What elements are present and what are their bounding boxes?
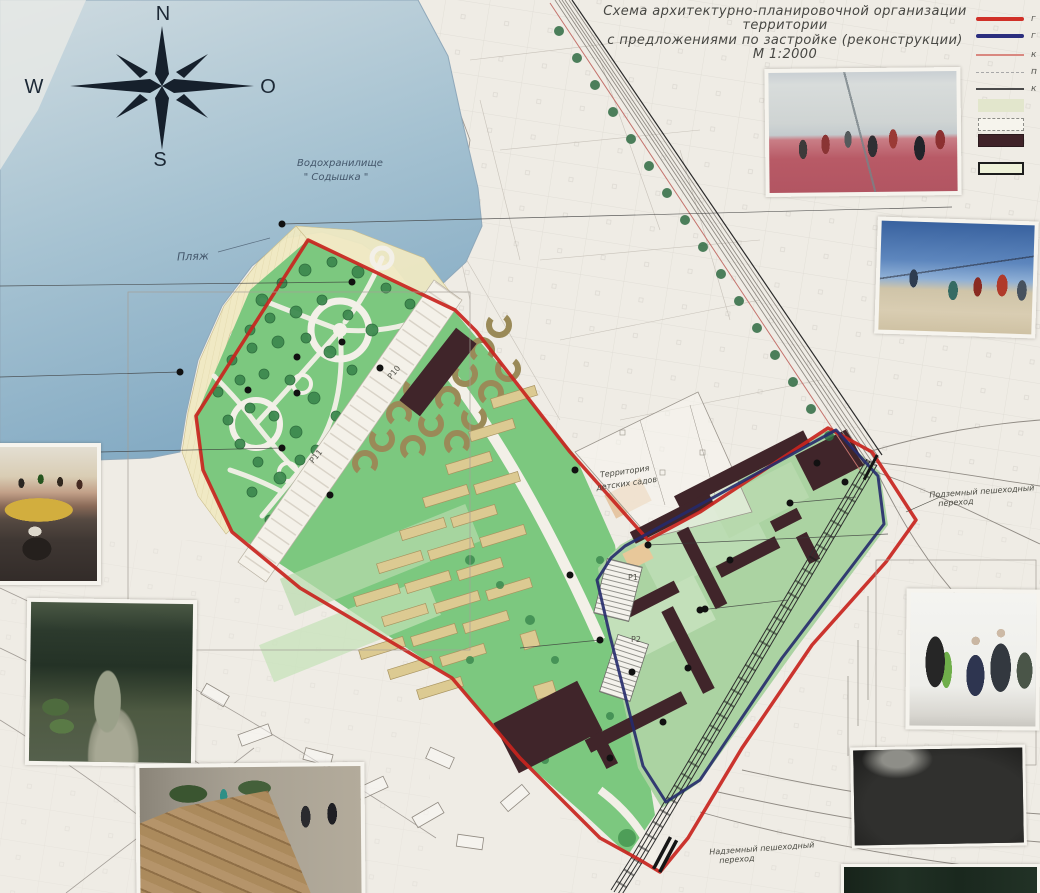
legend-swatch-dashed-outline-area <box>978 118 1024 131</box>
photo-dark-landscape <box>850 744 1027 848</box>
photo-beach-volleyball <box>874 217 1039 339</box>
photo-stone-path <box>25 598 197 767</box>
thin-dark-line-symbol <box>976 88 1024 90</box>
legend-label-fragment: к <box>1031 84 1036 94</box>
title-scale: М 1:2000 <box>565 48 1005 62</box>
legend-label-fragment: г <box>1031 14 1036 24</box>
compass-west-label: W <box>25 76 44 98</box>
photo-skatepark <box>0 443 101 585</box>
legend-item-dashed-line: п <box>976 67 1040 77</box>
compass-east-label: O <box>260 76 276 98</box>
stone-path-photo-image <box>29 602 193 763</box>
thin-dashed-line-symbol <box>976 72 1024 73</box>
legend-item-red-boundary: г <box>976 14 1040 24</box>
thin-red-line-symbol <box>976 54 1024 56</box>
legend-item-red-line: к <box>976 50 1040 60</box>
sheet-title: Схема архитектурно-планировочной организ… <box>565 5 1005 62</box>
photo-outdoor-gym <box>905 588 1040 730</box>
parking-label-p1: Р1 <box>628 573 638 582</box>
legend-item-navy-boundary: г <box>976 31 1040 41</box>
legend-label-fragment: к <box>1031 50 1036 60</box>
reservoir-label-line1: Водохранилище <box>297 158 383 169</box>
compass-north-label: N <box>156 3 170 25</box>
dark-landscape-photo-image <box>853 748 1024 846</box>
legend-swatch-existing-building <box>978 134 1024 147</box>
basketball-photo-image <box>768 71 957 193</box>
photo-urban-deck-benches <box>135 762 365 893</box>
parking-label-p2: Р2 <box>631 635 641 644</box>
legend-item-dark-line: к <box>976 84 1040 94</box>
map-legend: г г к п к <box>976 0 1040 200</box>
legend-swatch-pale-green-area <box>978 99 1024 112</box>
title-line-3: с предложениями по застройке (реконструк… <box>565 34 1005 48</box>
reservoir-label-line2: " Содышка " <box>304 172 369 183</box>
photo-basketball-court <box>764 67 961 197</box>
forest-photo-image <box>844 867 1037 893</box>
photo-forest-strip <box>841 864 1040 893</box>
beach-label: Пляж <box>177 249 209 263</box>
volleyball-photo-image <box>878 221 1034 335</box>
title-line-2: территории <box>565 19 1005 33</box>
outdoor-gym-photo-image <box>909 592 1036 726</box>
legend-label-fragment: п <box>1031 67 1037 77</box>
master-plan-sheet: N S W O Водохранилище " Содышка " Пляж Т… <box>0 0 1040 893</box>
thick-red-line-symbol <box>976 17 1024 21</box>
title-line-1: Схема архитектурно-планировочной организ… <box>565 5 1005 19</box>
skatepark-photo-image <box>0 447 97 581</box>
legend-label-fragment: г <box>1031 31 1036 41</box>
compass-south-label: S <box>153 149 166 171</box>
roundabout-green <box>618 829 636 847</box>
legend-swatch-proposed-building <box>978 162 1024 175</box>
thick-navy-line-symbol <box>976 34 1024 38</box>
